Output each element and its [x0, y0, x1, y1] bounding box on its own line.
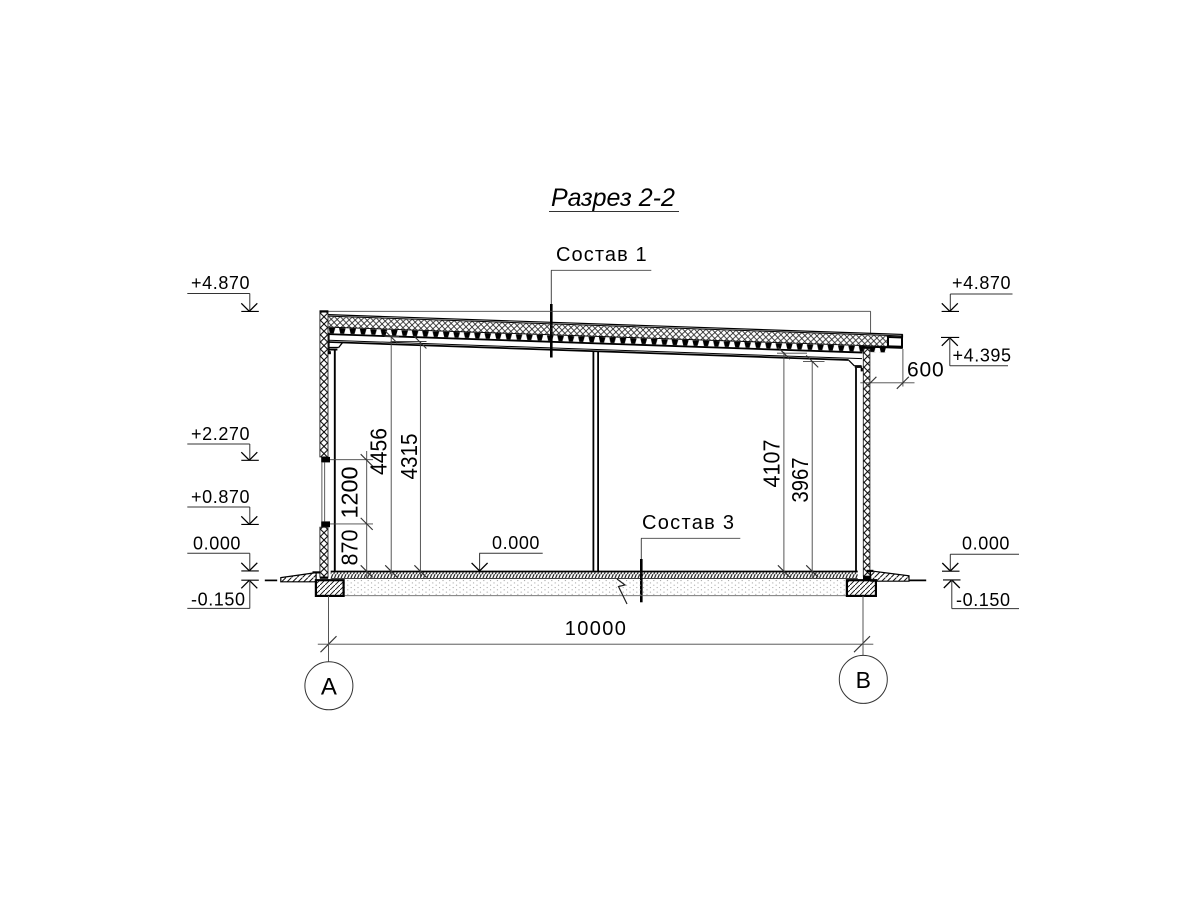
svg-text:1200: 1200: [337, 467, 363, 519]
svg-text:B: B: [856, 667, 871, 693]
svg-text:-0.150: -0.150: [956, 590, 1011, 610]
svg-text:-0.150: -0.150: [191, 590, 246, 610]
svg-text:+0.870: +0.870: [191, 487, 250, 507]
svg-text:+4.870: +4.870: [191, 273, 250, 293]
svg-text:4315: 4315: [396, 434, 422, 480]
svg-text:10000: 10000: [565, 618, 628, 640]
svg-text:Состав 3: Состав 3: [642, 512, 735, 534]
svg-text:Разрез 2-2: Разрез 2-2: [551, 184, 675, 212]
svg-text:+4.395: +4.395: [953, 346, 1012, 366]
svg-text:0.000: 0.000: [492, 533, 540, 553]
svg-text:4107: 4107: [759, 440, 785, 488]
svg-text:0.000: 0.000: [193, 534, 241, 554]
svg-text:+2.270: +2.270: [191, 424, 250, 444]
svg-text:Состав 1: Состав 1: [556, 244, 648, 266]
svg-text:0.000: 0.000: [962, 534, 1010, 554]
svg-text:870: 870: [337, 530, 363, 566]
svg-text:+4.870: +4.870: [952, 273, 1011, 293]
svg-text:A: A: [321, 674, 337, 701]
svg-text:3967: 3967: [787, 458, 813, 503]
svg-text:4456: 4456: [366, 428, 392, 475]
svg-text:600: 600: [907, 359, 944, 382]
